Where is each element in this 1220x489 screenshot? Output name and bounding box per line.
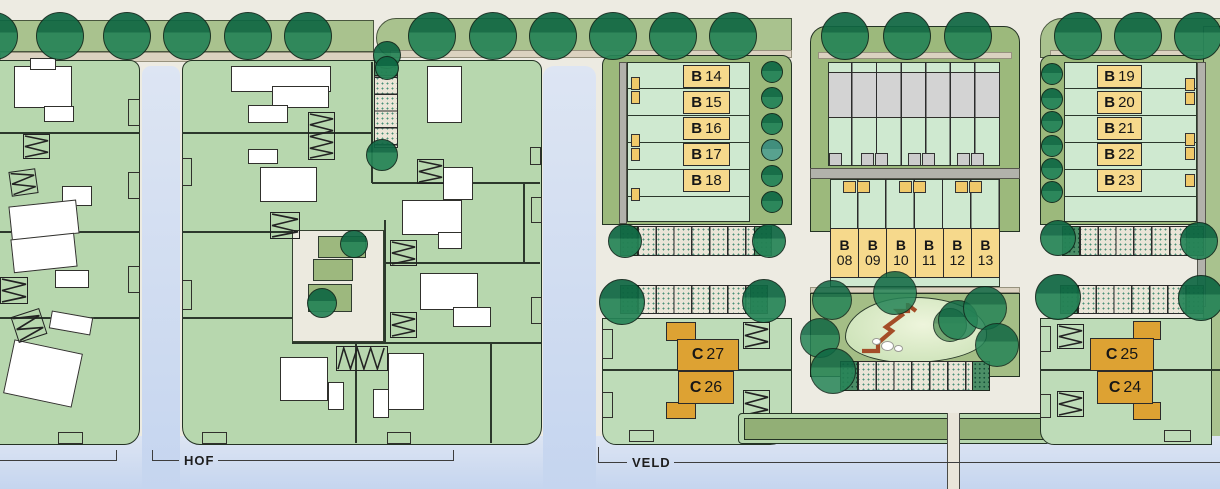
tree-icon [810,348,856,394]
tree-icon [224,12,272,60]
parcel-line [0,132,140,134]
building [14,66,72,108]
parcel-notch [58,432,83,444]
tree-icon [366,139,398,171]
plot-number: 25 [1120,346,1138,364]
plot-label: B [952,238,962,253]
parcel-line [523,182,525,263]
tree-icon [649,12,697,60]
building [427,66,462,123]
tree-icon [752,224,786,258]
area-label-hof: HOF [184,453,214,468]
building [328,382,344,410]
bush-icon [761,139,783,161]
plot-number: 11 [922,253,937,268]
building [260,167,317,202]
plot-number: 09 [865,253,881,268]
tree-icon [1040,220,1076,256]
bush-icon [761,61,783,83]
plot-label: B [1104,172,1115,189]
parcel-line [490,342,492,443]
footbridge [947,413,960,489]
plot-label: B [980,238,990,253]
plot-c26[interactable]: C26 [678,371,734,404]
plot-b20[interactable]: B20 [1097,91,1142,114]
plot-label: B [1104,68,1115,85]
carport-zigzag-icon [336,346,388,371]
plot-c25[interactable]: C25 [1090,338,1154,371]
parcel-line [292,342,541,344]
plot-label: B [1104,120,1115,137]
plot-number: 27 [706,346,724,364]
parcel-line [182,317,293,319]
parcel-line [828,62,1000,166]
parcel-notch [531,297,542,324]
plot-label: C [692,346,704,364]
parcel-notch [530,147,541,165]
shed [969,181,982,193]
shed [1185,92,1195,105]
shed [922,153,935,166]
bush-icon [1041,181,1063,203]
plot-b11[interactable]: B11 [916,229,944,277]
garage-zigzag-icon [743,322,770,349]
boulder [872,338,881,345]
plot-b17[interactable]: B17 [683,143,730,166]
dimension-line [153,460,179,461]
bush-icon [1041,135,1063,157]
building [55,270,89,288]
garage-zigzag-icon [23,134,50,159]
dimension-line [674,462,1220,463]
shed [971,153,984,166]
plot-label: B [896,238,906,253]
tree-icon [883,12,931,60]
tree-icon [284,12,332,60]
building [30,58,56,70]
plot-label: B [691,172,702,189]
shed [899,181,912,193]
plot-b08[interactable]: B08 [831,229,859,277]
parcel-notch [1040,394,1051,418]
plot-c27[interactable]: C27 [677,339,739,371]
garage-zigzag-icon [0,277,28,304]
garage-zigzag-icon [390,240,417,266]
building [44,106,74,122]
bush-icon [761,87,783,109]
shed [631,148,640,161]
bush-icon [1041,158,1063,180]
bush-icon [761,113,783,135]
shed [631,77,640,90]
tree-icon [1174,12,1220,60]
tree-icon [340,230,368,258]
site-plan-map: B14 B15 B16 B17 B18 C27 C26 B08 B09 B10 … [0,0,1220,489]
plot-c24[interactable]: C24 [1097,371,1153,404]
bush-icon [1041,88,1063,110]
dimension-tick [598,447,599,463]
tree-icon [469,12,517,60]
building [420,273,478,310]
shed [1185,147,1195,160]
building [388,353,424,410]
plot-number: 18 [705,172,722,189]
building [280,357,328,401]
plot-number: 24 [1123,379,1141,397]
plot-number: 22 [1118,146,1135,163]
garage-zigzag-icon [308,112,335,160]
plot-label: C [1109,379,1121,397]
shed [955,181,968,193]
tree-icon [742,279,786,323]
dimension-line [599,462,627,463]
shed [857,181,870,193]
shed [631,188,640,201]
building [248,105,288,123]
plot-label: B [691,68,702,85]
tree-icon [709,12,757,60]
bush-icon [1041,111,1063,133]
parcel-notch [1040,326,1051,352]
bush-icon [761,165,783,187]
garden-patch [313,259,353,281]
parcel-line [627,196,750,197]
garage-zigzag-icon [1057,391,1084,417]
parking-strip [620,226,772,256]
shed [1185,133,1195,146]
plot-c26-wing [666,402,696,419]
shed [631,134,640,147]
parcel-line [182,132,372,134]
plot-b14[interactable]: B14 [683,65,730,88]
garage-zigzag-icon [270,212,300,239]
parcel-notch [182,158,192,186]
plot-label: B [1104,94,1115,111]
tree-icon [375,56,399,80]
tree-icon [163,12,211,60]
garage-zigzag-icon [417,159,444,184]
plot-label: B [691,120,702,137]
bush-icon [761,191,783,213]
footpath [619,62,627,224]
plot-b09[interactable]: B09 [859,229,887,277]
tree-icon [1054,12,1102,60]
parcel-notch [182,280,192,310]
tree-icon [599,279,645,325]
tree-icon [873,271,917,315]
building [453,307,491,327]
shed [843,181,856,193]
tree-icon [975,323,1019,367]
plot-number: 26 [704,379,722,397]
plot-number: 15 [705,94,722,111]
building [10,233,77,274]
shed [1185,78,1195,91]
plot-number: 17 [705,146,722,163]
tree-icon [1035,274,1081,320]
parcel-line [1064,88,1197,89]
plot-b18[interactable]: B18 [683,169,730,192]
parcel-line [1064,196,1197,197]
plot-b16[interactable]: B16 [683,117,730,140]
tree-icon [529,12,577,60]
shed [913,181,926,193]
plot-c24-wing [1133,402,1161,420]
plot-number: 12 [949,253,965,268]
boulder [881,341,894,351]
parcel-notch [531,197,542,223]
parcel-notch [128,99,140,126]
plot-number: 10 [893,253,909,268]
tree-icon [589,12,637,60]
shed [631,91,640,104]
dimension-tick [116,450,117,461]
plot-number: 16 [705,120,722,137]
street [810,168,1020,179]
parcel-notch [602,329,613,359]
plot-b21[interactable]: B21 [1097,117,1142,140]
parcel-notch [602,392,613,418]
plot-b10[interactable]: B10 [887,229,915,277]
boulder [894,345,903,352]
plot-row-b08-b13: B08 B09 B10 B11 B12 B13 [830,228,1000,278]
dimension-tick [453,450,454,461]
parcel-notch [202,432,227,444]
plot-number: 19 [1118,68,1135,85]
plot-number: 14 [705,68,722,85]
plot-number: 08 [837,253,853,268]
tree-icon [812,280,852,320]
parcel-notch [128,172,140,199]
parcel-line [384,220,386,343]
plot-b22[interactable]: B22 [1097,143,1142,166]
plot-label: B [1104,146,1115,163]
plot-label: C [1106,346,1118,364]
plot-label: B [691,94,702,111]
building [373,389,389,418]
garage-zigzag-icon [390,312,417,338]
parking-hedge [972,361,990,391]
shed [908,153,921,166]
green-strip-inner [744,418,1044,440]
tree-icon [1114,12,1162,60]
plot-b12[interactable]: B12 [944,229,972,277]
garage-zigzag-icon [1057,324,1084,349]
plot-label: B [924,238,934,253]
tree-icon [821,12,869,60]
parcel-notch [629,430,654,442]
plot-label: B [840,238,850,253]
tree-icon [36,12,84,60]
garage-zigzag-icon [8,168,38,197]
building [443,167,473,200]
parcel-notch [387,432,411,444]
footpath [1197,62,1206,307]
tree-icon [408,12,456,60]
bush-icon [1041,63,1063,85]
building [248,149,278,164]
plot-b23[interactable]: B23 [1097,169,1142,192]
plot-number: 20 [1118,94,1135,111]
area-label-veld: VELD [632,455,671,470]
shed [861,153,874,166]
plot-number: 21 [1118,120,1135,137]
parcel-notch [1164,430,1191,442]
plot-number: 13 [978,253,994,268]
canal-water [142,66,180,489]
tree-icon [307,288,337,318]
tree-icon [944,12,992,60]
building [438,232,462,249]
plot-b15[interactable]: B15 [683,91,730,114]
shed [957,153,970,166]
shed [829,153,842,166]
shed [875,153,888,166]
plot-label: C [690,379,702,397]
plot-label: B [691,146,702,163]
parking-strip [840,361,990,391]
dimension-line [218,460,454,461]
plot-number: 23 [1118,172,1135,189]
parcel-notch [128,266,140,293]
tree-icon [1178,275,1220,321]
plot-b19[interactable]: B19 [1097,65,1142,88]
tree-icon [1180,222,1218,260]
canal-water [543,66,596,489]
shed [1185,174,1195,187]
plot-label: B [868,238,878,253]
tree-icon [608,224,642,258]
building [402,200,462,235]
dimension-line [0,460,117,461]
tree-icon [103,12,151,60]
plot-b13[interactable]: B13 [972,229,999,277]
parcel-line [627,88,750,89]
